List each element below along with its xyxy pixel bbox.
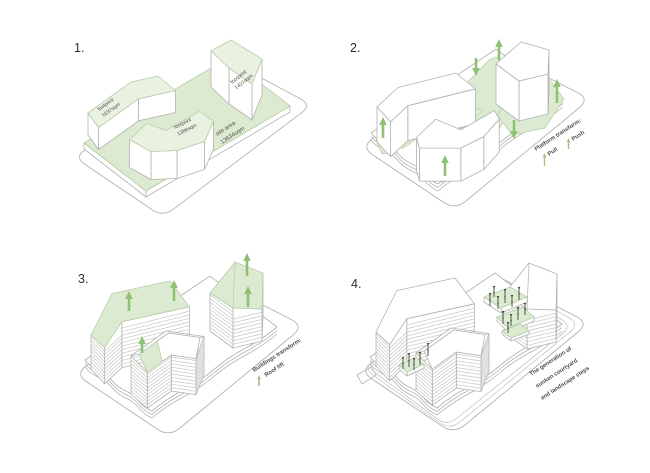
svg-text:1.: 1. (74, 41, 84, 55)
svg-text:3.: 3. (78, 272, 88, 286)
svg-text:2.: 2. (350, 41, 360, 55)
svg-text:4.: 4. (351, 277, 361, 291)
